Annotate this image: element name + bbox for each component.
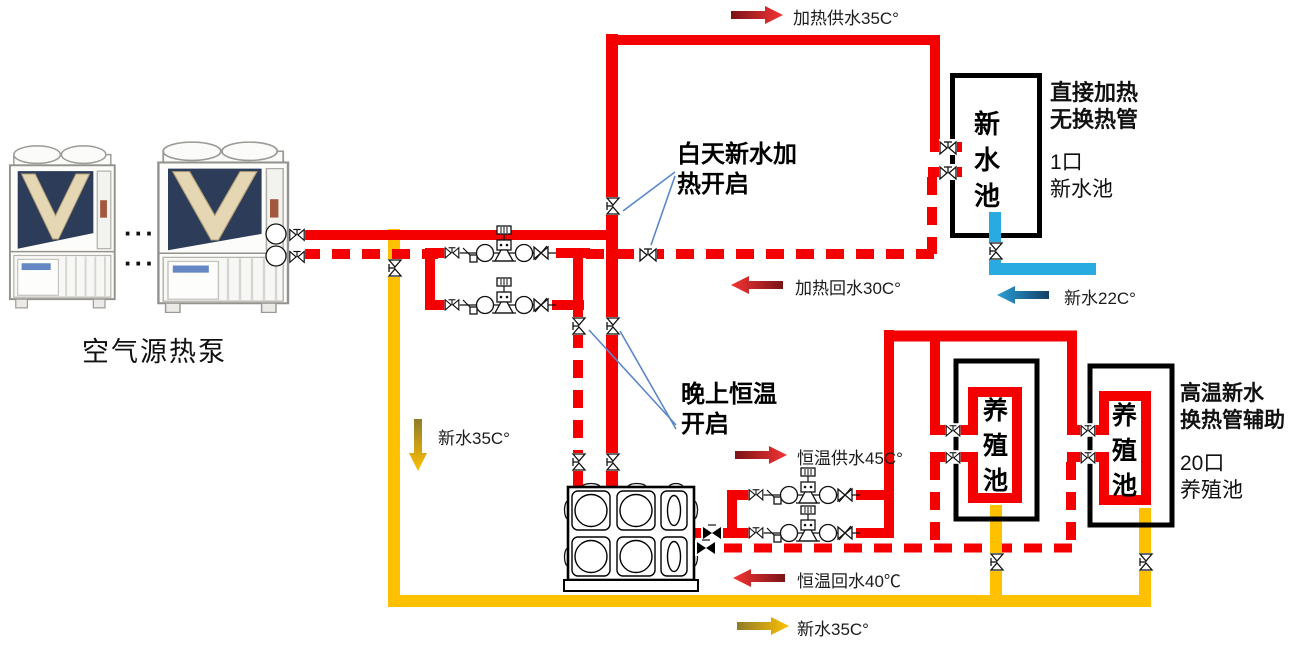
pump-branch-top-2 (444, 278, 556, 314)
breeding-count: 20口 (1180, 450, 1285, 477)
arrow-new-water-down (409, 419, 427, 471)
heat-pump-label: 空气源热泵 (82, 330, 227, 369)
valve-hp-supply (289, 227, 305, 241)
pump-branch-bottom-2 (748, 506, 860, 542)
breeding-pool1-label: 养殖池 (983, 394, 1013, 499)
piping-diagram: ··· ··· 空气源热泵 加热供水35C° 加热回水30C° 恒温供水45C°… (0, 0, 1307, 645)
label-new-water-down: 新水35C° (438, 424, 510, 449)
pipe-cold-new-water (995, 212, 1096, 269)
valve-day-return (639, 246, 657, 262)
new-pool-note-line2: 无换热管 (1050, 106, 1138, 133)
new-pool-note: 直接加热 无换热管 1口 新水池 (1050, 79, 1138, 203)
breeding-pool2-label: 养殖池 (1112, 399, 1142, 504)
hp-connector-return (266, 246, 286, 266)
valve-new-water-pool2 (1137, 553, 1153, 571)
label-new-water-bottom: 新水35C° (797, 615, 869, 640)
valve-night-return (570, 317, 586, 335)
label-heating-return: 加热回水30C° (795, 274, 901, 299)
heat-pump-ellipsis-top: ··· (124, 218, 156, 249)
valve-newpool-out (939, 164, 957, 180)
valve-cold-water (987, 242, 1003, 260)
valve-tank-inlet-1 (570, 453, 586, 471)
water-tank (564, 484, 698, 592)
valve-tank-return (695, 540, 717, 556)
hp-connector-supply (266, 224, 286, 244)
arrow-constant-supply (735, 446, 787, 464)
arrow-heating-return (731, 276, 783, 294)
pointer-night-valve-2 (620, 331, 676, 429)
valve-coil2-in (1080, 423, 1095, 437)
valve-coil2-out (1080, 450, 1095, 464)
valve-coil1-out (945, 450, 960, 464)
label-constant-return: 恒温回水40℃ (797, 567, 901, 592)
annotation-day: 白天新水加 热开启 (677, 140, 797, 200)
arrow-new-water-cold (997, 286, 1049, 304)
label-heating-supply: 加热供水35C° (793, 4, 899, 29)
breeding-note-line2: 换热管辅助 (1180, 407, 1285, 434)
valve-newpool-in (939, 139, 957, 155)
breeding-count-target: 养殖池 (1180, 477, 1285, 504)
valve-new-water-main (386, 259, 402, 277)
annotation-day-line1: 白天新水加 (677, 140, 797, 170)
valve-night-supply (604, 317, 620, 335)
new-pool-count-target: 新水池 (1050, 176, 1138, 203)
heat-pump-ellipsis-bottom: ··· (124, 248, 156, 279)
breeding-note-line1: 高温新水 (1180, 380, 1285, 407)
arrow-heating-supply (731, 6, 783, 24)
label-new-water-cold: 新水22C° (1064, 284, 1136, 309)
new-pool-count: 1口 (1050, 149, 1138, 176)
new-pool-note-line1: 直接加热 (1050, 79, 1138, 106)
valve-day-supply (604, 197, 620, 215)
breeding-note: 高温新水 换热管辅助 20口 养殖池 (1180, 380, 1285, 504)
arrow-constant-return (733, 569, 785, 587)
annotation-night-line1: 晚上恒温 (681, 380, 777, 410)
pointer-night-valve-1 (589, 330, 676, 425)
pump-branch-bottom-1 (748, 468, 860, 504)
arrow-new-water-bottom (737, 617, 789, 635)
pointer-day-valve-1 (623, 172, 675, 211)
annotation-night: 晚上恒温 开启 (681, 380, 777, 440)
new-pool-tank-label: 新水池 (974, 106, 1004, 214)
valve-tank-out (701, 525, 723, 541)
valve-coil1-in (945, 423, 960, 437)
annotation-day-line2: 热开启 (677, 170, 797, 200)
valve-hp-return (289, 249, 305, 263)
valve-new-water-pool1 (988, 553, 1004, 571)
valve-tank-inlet-2 (604, 453, 620, 471)
label-constant-supply: 恒温供水45C° (797, 444, 903, 469)
heat-pump-unit-1 (10, 146, 115, 308)
annotation-night-line2: 开启 (681, 410, 777, 440)
